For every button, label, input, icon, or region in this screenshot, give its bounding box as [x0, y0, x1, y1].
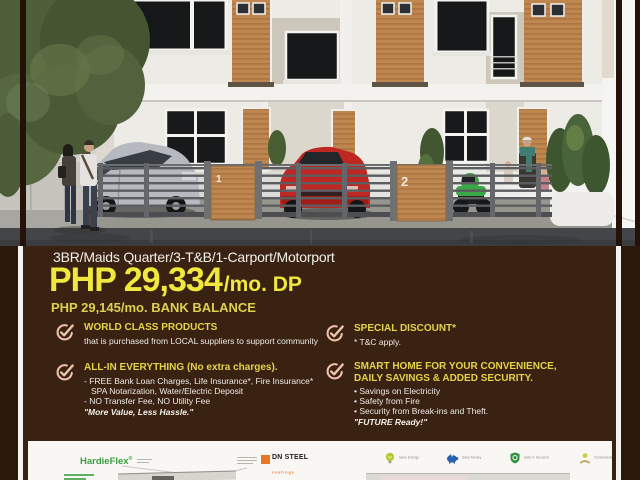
- feature-text: - NO Transfer Fee, NO Utility Fee: [84, 396, 313, 406]
- curved-planter-wall: [550, 192, 614, 226]
- gate-number-2: 2: [401, 174, 408, 189]
- townhouse-render-photo: 1 2: [0, 0, 640, 246]
- eco-item-convenience: Convenience: [579, 452, 612, 464]
- eco-item-energy: Save Energy: [384, 452, 433, 464]
- dn-steel-sub: roofings: [272, 471, 295, 475]
- dn-steel-mark: [261, 455, 270, 464]
- eco-feature-icons: Save Energy Save Money Safe n' Secured C…: [384, 452, 612, 464]
- fine-print: [237, 460, 257, 461]
- feature-world-class: WORLD CLASS PRODUCTS that is purchased f…: [56, 322, 312, 346]
- border-line-left: [18, 246, 23, 480]
- eco-label: Safe n' Secured: [524, 456, 549, 459]
- feature-tagline: "More Value, Less Hassle.": [84, 407, 313, 417]
- feature-title: WORLD CLASS PRODUCTS: [84, 322, 318, 334]
- price-line: PHP 29,334 /mo. DP: [49, 261, 302, 300]
- check-icon: [56, 362, 75, 417]
- feature-title: SPECIAL DISCOUNT*: [354, 323, 456, 335]
- feature-text: SPA Notarization, Water/Electric Deposit: [84, 386, 313, 396]
- dp-price-suffix: /mo. DP: [224, 273, 302, 297]
- fine-print: [237, 457, 257, 458]
- footer-brand-strip: HardieFlex® DN STEEL roofings Save Energ…: [28, 441, 612, 480]
- feature-tagline: "FUTURE Ready!": [354, 417, 584, 427]
- feature-text: • Security from Break-ins and Theft.: [354, 406, 584, 416]
- bulb-icon: [384, 452, 396, 464]
- dn-steel-logo: DN STEEL roofings: [261, 454, 309, 480]
- check-icon: [326, 323, 345, 347]
- piggy-bank-icon: [446, 452, 459, 464]
- fine-print: [137, 459, 152, 460]
- feature-all-in: ALL-IN EVERYTHING (No extra charges). - …: [56, 362, 318, 417]
- cutoff-image-right-inner: [380, 475, 468, 480]
- feature-text: * T&C apply.: [354, 337, 456, 347]
- eco-label: Convenience: [594, 456, 612, 459]
- feature-special-discount: SPECIAL DISCOUNT* * T&C apply.: [326, 323, 576, 347]
- dp-price: PHP 29,334: [49, 261, 222, 300]
- eco-label: Save Money: [462, 456, 481, 459]
- check-icon: [326, 361, 345, 427]
- gate-number-1: 1: [216, 174, 222, 185]
- fine-print: [237, 463, 253, 464]
- shield-icon: [509, 452, 521, 464]
- bank-balance-line: PHP 29,145/mo. BANK BALANCE: [51, 300, 256, 315]
- eco-item-secure: Safe n' Secured: [509, 452, 567, 464]
- eco-label: Save Energy: [399, 456, 419, 459]
- flyer: 1 2: [0, 0, 640, 480]
- fine-print: [137, 462, 149, 463]
- feature-smart-home: SMART HOME FOR YOUR CONVENIENCE, DAILY S…: [326, 361, 588, 427]
- feature-text: • Safety from Fire: [354, 396, 584, 406]
- cutoff-text: [64, 474, 94, 476]
- gate-2: 2: [397, 165, 446, 221]
- feature-text: • Savings on Electricity: [354, 386, 584, 396]
- feature-text: that is purchased from LOCAL suppliers t…: [84, 336, 318, 346]
- frame-line-right: [616, 0, 622, 246]
- hand-coin-icon: [579, 452, 591, 464]
- feature-title: ALL-IN EVERYTHING (No extra charges).: [84, 362, 313, 374]
- check-icon: [56, 322, 75, 346]
- frame-line-left: [20, 0, 26, 246]
- eco-item-money: Save Money: [446, 452, 495, 464]
- frame-edge-right: [635, 0, 640, 246]
- gate-1: 1: [211, 166, 255, 220]
- cutoff-house-detail: [152, 476, 174, 480]
- feature-text: - FREE Bank Loan Charges, Life Insurance…: [84, 376, 313, 386]
- hardieflex-logo: HardieFlex®: [80, 456, 132, 467]
- cutoff-text: [64, 478, 86, 480]
- dn-steel-name: DN STEEL: [272, 454, 309, 462]
- border-line-right: [616, 246, 621, 480]
- feature-title: SMART HOME FOR YOUR CONVENIENCE, DAILY S…: [354, 361, 584, 384]
